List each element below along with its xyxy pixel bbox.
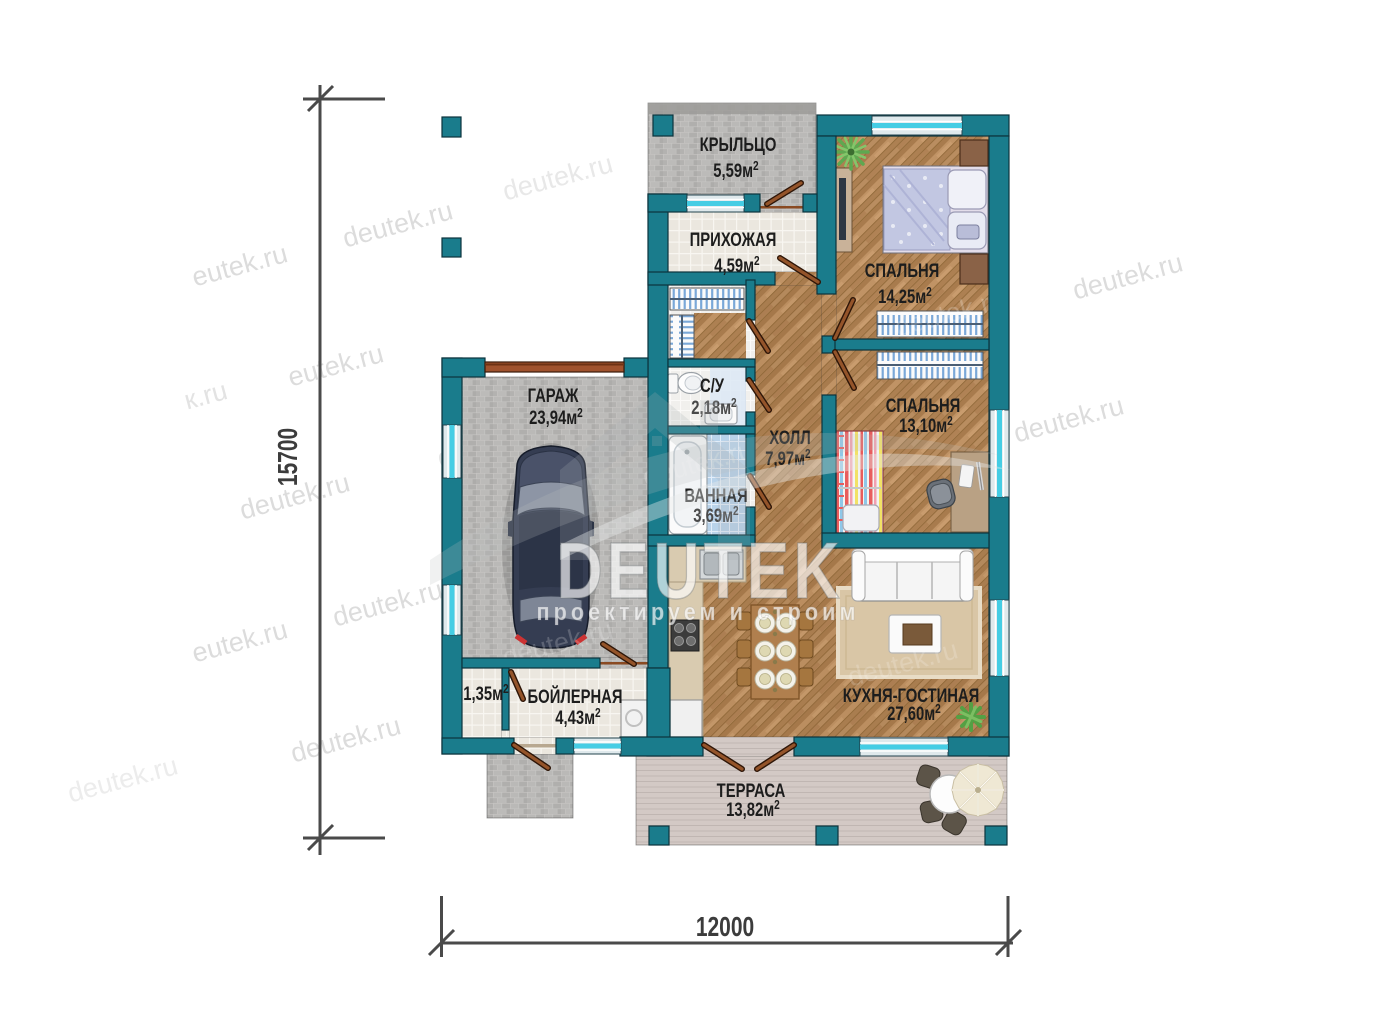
svg-text:13,10м2: 13,10м2 — [899, 414, 953, 437]
svg-text:БОЙЛЕРНАЯ: БОЙЛЕРНАЯ — [528, 686, 623, 707]
svg-text:13,82м2: 13,82м2 — [726, 798, 780, 821]
svg-text:ПРИХОЖАЯ: ПРИХОЖАЯ — [690, 229, 777, 250]
svg-text:27,60м2: 27,60м2 — [887, 702, 941, 725]
svg-text:КРЫЛЬЦО: КРЫЛЬЦО — [700, 134, 777, 155]
svg-text:14,25м2: 14,25м2 — [878, 285, 932, 308]
svg-text:1,35м2: 1,35м2 — [463, 682, 509, 705]
svg-text:проектируем и строим: проектируем и строим — [537, 598, 860, 625]
svg-text:12000: 12000 — [696, 912, 754, 943]
svg-text:4,43м2: 4,43м2 — [555, 706, 601, 729]
svg-text:15700: 15700 — [273, 428, 304, 486]
svg-text:СПАЛЬНЯ: СПАЛЬНЯ — [865, 260, 940, 281]
svg-text:4,59м2: 4,59м2 — [714, 254, 760, 277]
svg-text:С/У: С/У — [700, 375, 724, 396]
svg-text:5,59м2: 5,59м2 — [713, 159, 759, 182]
svg-text:23,94м2: 23,94м2 — [529, 406, 583, 429]
svg-text:ГАРАЖ: ГАРАЖ — [528, 385, 579, 406]
